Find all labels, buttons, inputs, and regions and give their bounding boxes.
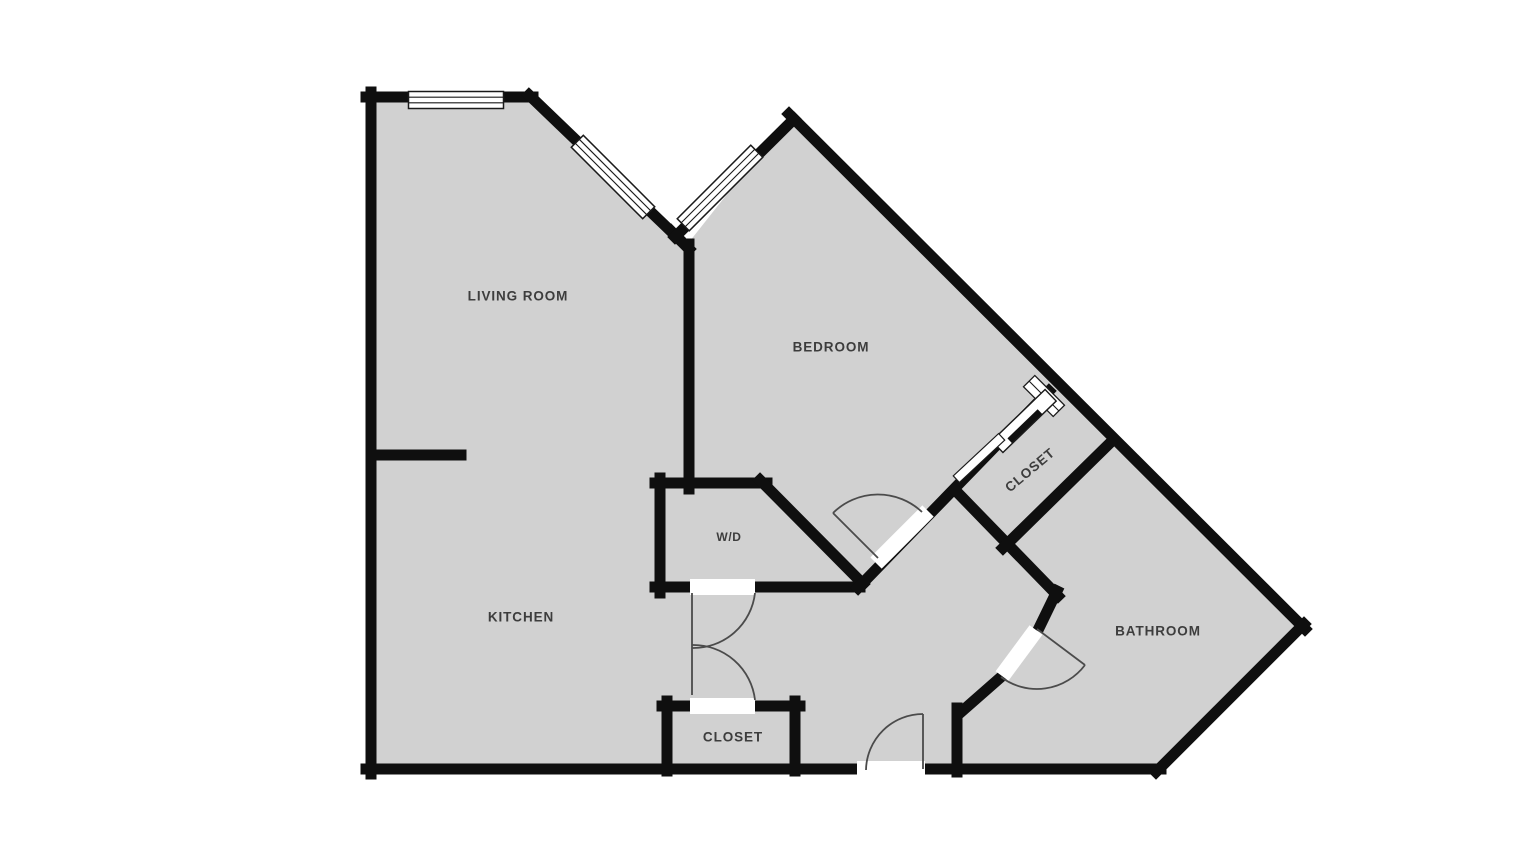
label-closet-hall: CLOSET	[703, 730, 763, 745]
label-bedroom: BEDROOM	[793, 340, 870, 355]
floor-plan-drawing	[0, 0, 1520, 855]
label-washer-dryer: W/D	[716, 530, 741, 544]
label-living-room: LIVING ROOM	[468, 289, 569, 304]
floor-plan-page: LIVING ROOM BEDROOM KITCHEN W/D CLOSET B…	[0, 0, 1520, 855]
window-living-room-top	[409, 92, 504, 109]
closet-hall-door-opening	[690, 698, 755, 714]
floor-area	[366, 92, 1307, 774]
wd-door-opening	[690, 579, 755, 595]
label-bathroom: BATHROOM	[1115, 624, 1201, 639]
label-kitchen: KITCHEN	[488, 610, 554, 625]
